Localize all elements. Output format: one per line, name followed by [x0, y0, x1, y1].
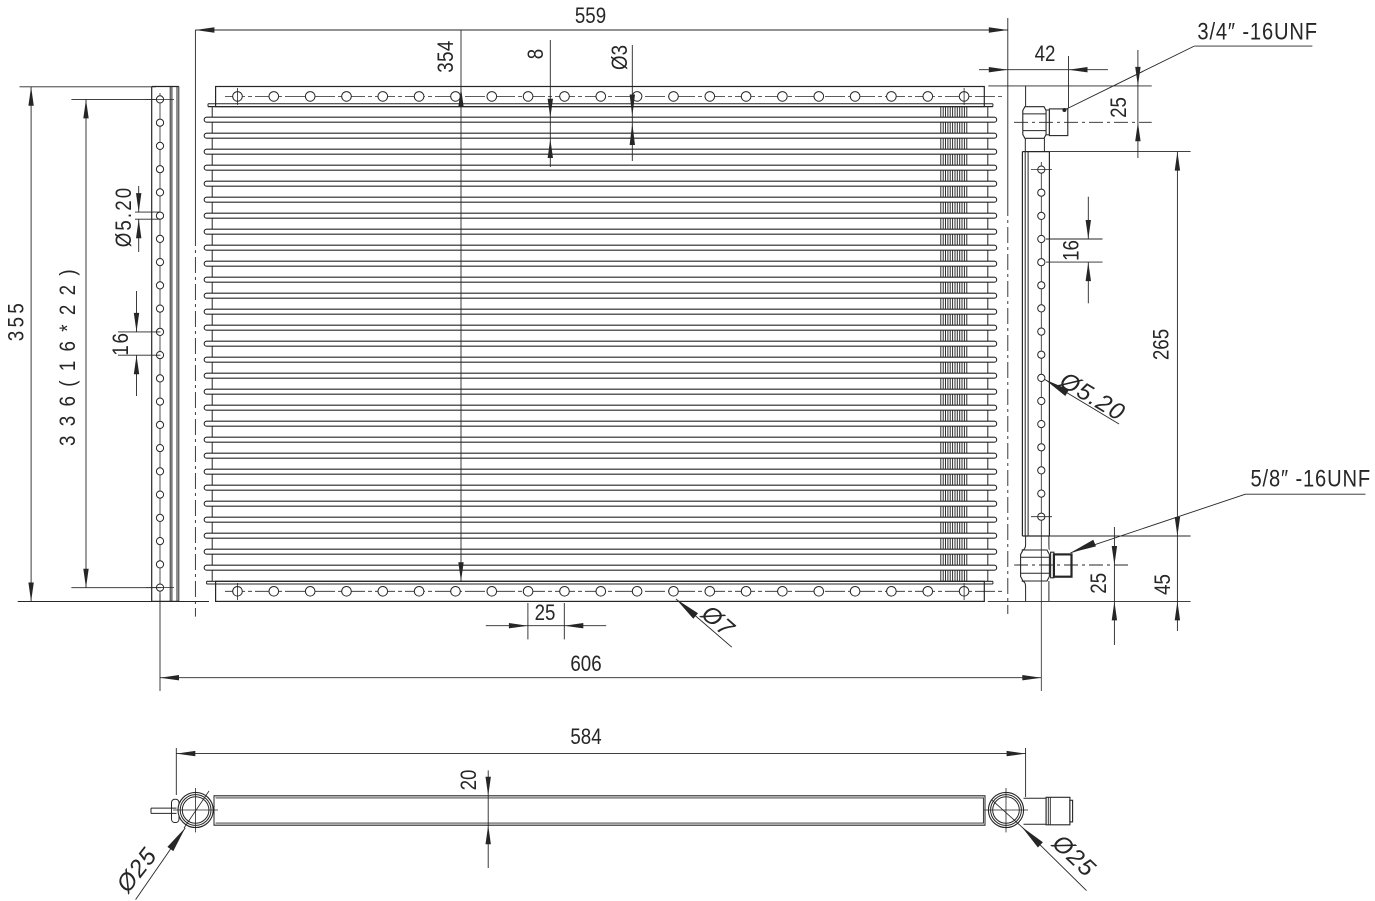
svg-text:42: 42 [1035, 43, 1056, 67]
svg-text:20: 20 [458, 770, 482, 791]
svg-text:25: 25 [1108, 97, 1132, 118]
svg-text:25: 25 [1088, 573, 1112, 594]
svg-text:Ø3: Ø3 [609, 45, 633, 70]
svg-text:16: 16 [110, 331, 134, 355]
svg-text:16: 16 [1060, 240, 1084, 261]
svg-text:Ø5.20: Ø5.20 [113, 186, 137, 248]
svg-text:5/8″ -16UNF: 5/8″ -16UNF [1251, 465, 1372, 492]
svg-text:606: 606 [570, 653, 601, 677]
svg-text:354: 354 [435, 40, 459, 72]
svg-text:3/4″ -16UNF: 3/4″ -16UNF [1197, 18, 1318, 45]
svg-text:336(16*22): 336(16*22) [57, 260, 81, 446]
svg-text:8: 8 [525, 49, 549, 59]
svg-text:355: 355 [5, 300, 29, 341]
svg-text:584: 584 [570, 726, 601, 750]
svg-text:45: 45 [1152, 574, 1176, 595]
svg-text:265: 265 [1150, 329, 1174, 360]
svg-text:25: 25 [535, 602, 556, 626]
svg-text:559: 559 [575, 5, 606, 29]
